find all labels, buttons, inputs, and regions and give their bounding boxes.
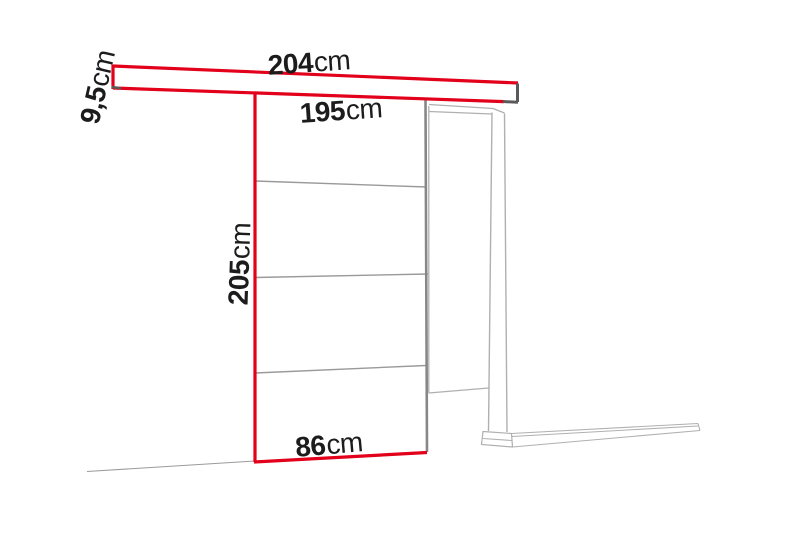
sliding-door (254, 93, 428, 462)
frame-header-top-line (429, 105, 493, 109)
door-width-label: 86cm (294, 428, 364, 462)
door-width-value: 86 (294, 429, 327, 463)
door-frame (429, 105, 700, 448)
baseboard-bottom-line (513, 431, 701, 448)
door-height-unit: cm (224, 222, 256, 259)
floor-line-opening (429, 388, 489, 393)
door-height-label: 205cm (225, 222, 256, 305)
track-width-label: 195cm (299, 94, 383, 128)
track-width-value: 195 (299, 95, 346, 129)
frame-post-left-edge (489, 113, 493, 432)
rail-length-value: 204 (267, 47, 314, 81)
rail-length-label: 204cm (267, 46, 351, 80)
frame-header-bottom-line (429, 112, 492, 115)
frame-header-corner-line (493, 109, 505, 114)
door-width-unit: cm (325, 426, 364, 460)
baseboard-mid-line (512, 426, 698, 437)
rail-bottom-right-segment (503, 102, 518, 103)
track-width-unit: cm (345, 92, 383, 125)
baseboard-top-line (512, 424, 699, 434)
door-height-value: 205 (223, 259, 256, 305)
rail-length-unit: cm (313, 44, 351, 77)
door-drawing (0, 0, 800, 533)
floor-line-left (87, 461, 255, 472)
baseboard-end-cap (698, 424, 700, 431)
frame-post-right-edge (505, 114, 508, 433)
dimension-diagram: 204cm 9,5cm 195cm 205cm 86cm (0, 0, 800, 533)
door-right-edge (426, 100, 428, 453)
